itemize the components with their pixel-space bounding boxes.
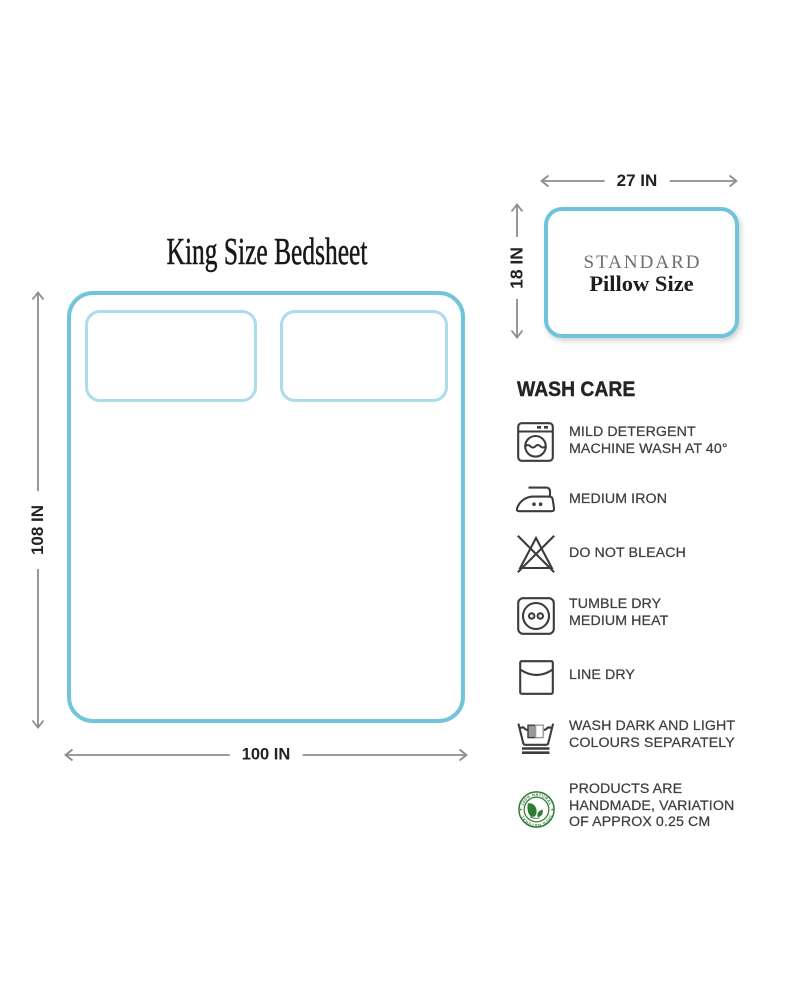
svg-text:100% NATURAL: 100% NATURAL — [519, 814, 554, 828]
svg-text:100% NATURAL: 100% NATURAL — [520, 792, 554, 806]
